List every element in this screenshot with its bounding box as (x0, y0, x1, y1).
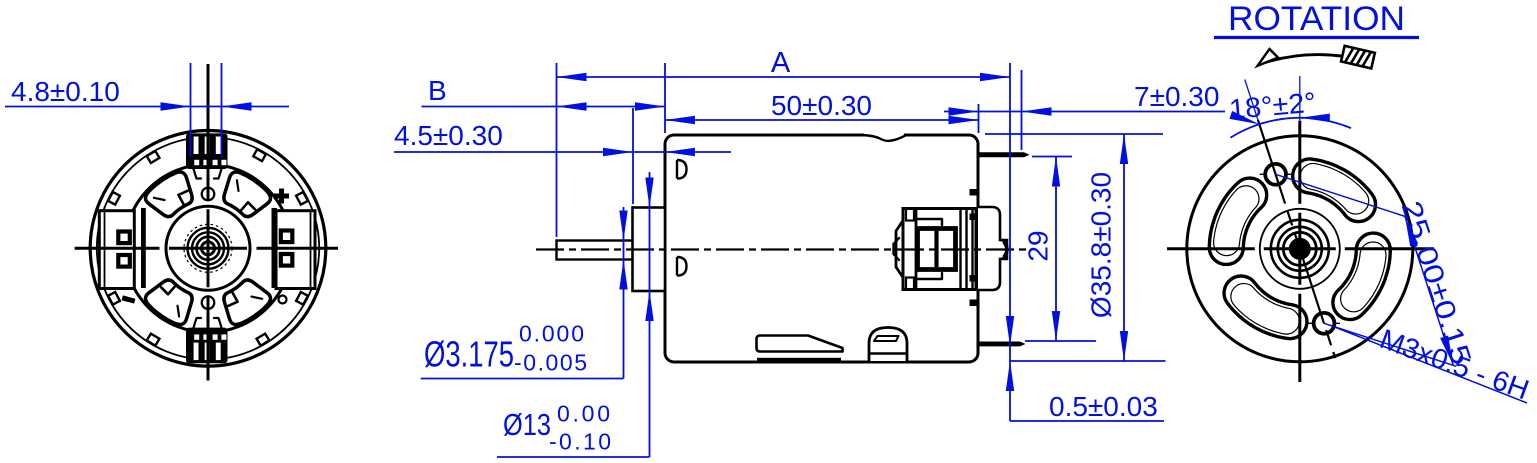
svg-text:B: B (428, 75, 447, 106)
svg-text:-0.10: -0.10 (549, 429, 611, 455)
svg-text:-0.005: -0.005 (514, 350, 587, 376)
svg-text:29: 29 (1023, 230, 1054, 261)
svg-text:Ø35.8±0.30: Ø35.8±0.30 (1086, 172, 1117, 318)
svg-text:A: A (771, 47, 791, 79)
svg-text:ROTATION: ROTATION (1228, 0, 1405, 38)
svg-text:7±0.30: 7±0.30 (1134, 81, 1219, 112)
svg-text:0.5±0.03: 0.5±0.03 (1049, 391, 1158, 422)
svg-text:4.5±0.30: 4.5±0.30 (394, 120, 503, 151)
svg-text:50±0.30: 50±0.30 (771, 90, 872, 121)
svg-text:4.8±0.10: 4.8±0.10 (11, 76, 120, 107)
svg-text:Ø13: Ø13 (503, 407, 551, 442)
svg-text:Ø3.175: Ø3.175 (424, 334, 514, 375)
svg-text:0.00: 0.00 (557, 401, 610, 427)
svg-text:0.000: 0.000 (519, 321, 584, 347)
